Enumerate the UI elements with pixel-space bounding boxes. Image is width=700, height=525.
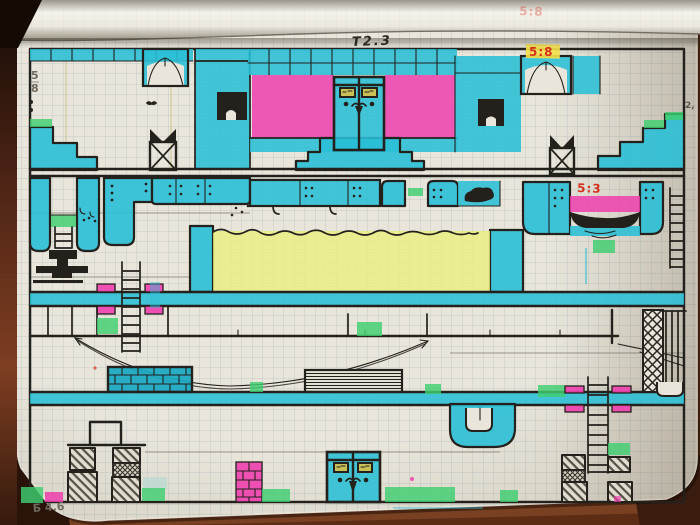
hall-double-door	[334, 77, 384, 150]
dark-window-right	[478, 99, 504, 126]
desk-left-edge	[0, 0, 17, 525]
green-ledge	[538, 385, 565, 397]
long-pipe	[250, 180, 380, 206]
pool-wall-left	[190, 226, 213, 292]
green-ledge	[608, 443, 630, 455]
chain-link-column	[643, 310, 663, 392]
hull-boat	[450, 404, 515, 447]
green-block	[142, 488, 165, 501]
magenta-tick	[614, 496, 621, 502]
beam-clamp	[612, 405, 631, 412]
beam-clamp	[565, 405, 584, 412]
bucket-container	[657, 382, 683, 396]
code-mid-right: 5:3	[577, 181, 602, 196]
beam-clamp	[612, 386, 631, 393]
door-handle	[338, 478, 343, 483]
brick-block	[108, 367, 192, 392]
green-ledge	[665, 112, 683, 120]
magenta-room-right	[385, 75, 455, 138]
door-plaque	[357, 462, 373, 473]
green-ledge	[425, 384, 441, 394]
border-blot	[29, 100, 33, 104]
door-plaque	[333, 462, 349, 473]
beam-clamp	[97, 284, 115, 292]
magenta-dot	[410, 477, 414, 481]
yellow-pool	[213, 231, 490, 292]
magenta-room-left	[252, 75, 334, 138]
curtain-window-left	[143, 49, 188, 86]
door-handle	[364, 478, 369, 483]
green-floor-patch	[500, 490, 518, 502]
riveted-slab	[152, 178, 250, 204]
dark-window-left	[217, 92, 247, 120]
fraction-denominator: 8	[31, 82, 39, 95]
curtain-window-right	[521, 56, 571, 94]
magenta-water	[570, 196, 640, 212]
magenta-brick-column	[236, 462, 262, 502]
roll-showthrough-mark: 5:8	[519, 4, 544, 19]
border-blot	[29, 108, 33, 112]
grate-block	[305, 370, 402, 392]
fraction-numerator: 5	[31, 69, 39, 82]
photo-hand-drawn-level-map: 5 8 Т2.3 5:8 5:3 Б 4.6 2, 5:8	[0, 0, 700, 525]
note-bottom-left: Б 4.6	[32, 500, 65, 515]
green-ledge	[593, 240, 615, 253]
red-dot	[93, 366, 96, 369]
green-block	[97, 318, 118, 334]
door-plaque	[339, 87, 356, 98]
pipe-end-block	[382, 181, 405, 206]
door-handle	[370, 102, 375, 107]
door-handle	[344, 102, 349, 107]
basement-double-door	[327, 452, 380, 502]
green-floor-patch	[385, 487, 455, 502]
acid-pool	[51, 215, 76, 227]
main-beam	[30, 292, 684, 306]
rolled-page-top: 5:8	[14, 0, 700, 48]
pipe-container	[428, 181, 458, 206]
marker-smudge	[150, 282, 160, 308]
green-ledge	[408, 188, 423, 196]
green-block	[357, 322, 382, 336]
green-ledge	[30, 119, 52, 127]
green-floor-patch	[262, 489, 290, 502]
green-ledge	[250, 382, 263, 392]
lower-beam	[30, 392, 684, 405]
beam-clamp	[565, 386, 584, 393]
margin-mark: 2,	[685, 101, 695, 111]
green-ledge	[644, 120, 664, 128]
pool-wall-right	[490, 230, 523, 292]
beam-clamp	[97, 306, 115, 314]
door-plaque	[361, 87, 378, 98]
cyan-pillar	[573, 56, 600, 94]
